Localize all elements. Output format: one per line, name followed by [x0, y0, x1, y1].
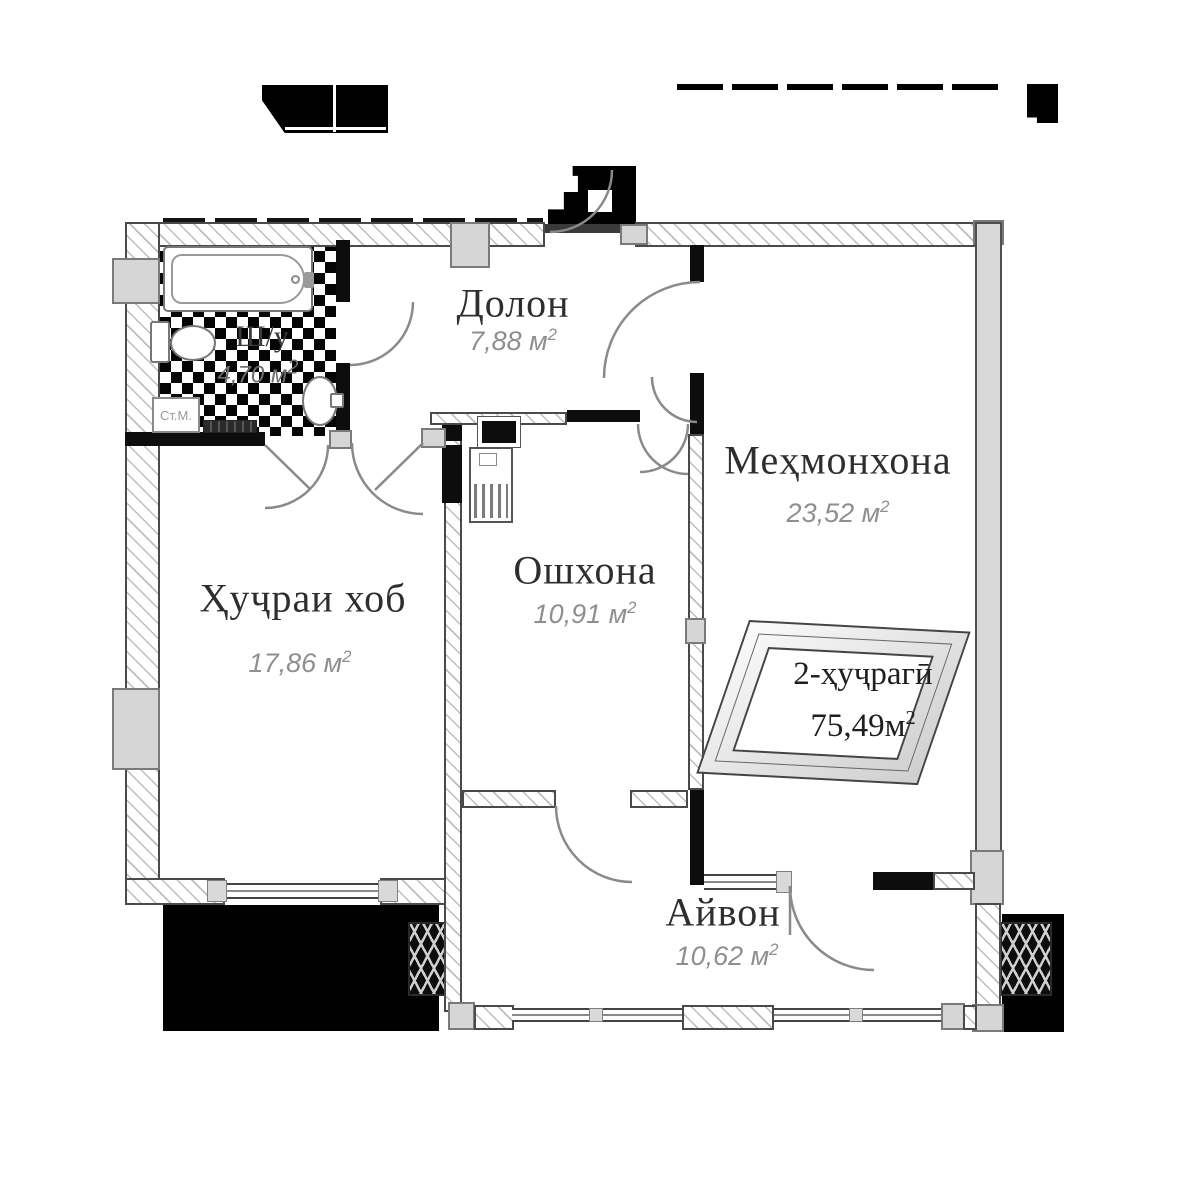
faucet-icon: [304, 272, 314, 288]
block-kitchen-living: [685, 618, 706, 644]
balcony-block-right: [941, 1003, 965, 1030]
balcony-center-pier: [682, 1005, 774, 1030]
block-bath-doors-mid: [329, 430, 352, 449]
right-wall-lower: [975, 903, 1001, 1007]
room-label-bathroom: Ш/у: [235, 320, 289, 354]
room-area-ayvon: 10,62 м2: [676, 940, 779, 972]
room-label-oshkhona: Ошхона: [513, 547, 656, 594]
hall-living-wall-upper: [690, 245, 704, 282]
room-area-bedroom: 17,86 м2: [249, 647, 352, 679]
total-area-badge-text: 2-ҳуҷрагӣ 75,49м2: [768, 652, 958, 748]
pier-left-upper: [112, 258, 160, 304]
bathtub-inner: [171, 254, 305, 304]
room-label-dolon: Долон: [456, 280, 569, 327]
room-label-mehmonkhona: Меҳмонхона: [724, 437, 951, 484]
neighbor-area-bottom-left: [163, 905, 439, 1031]
room-label-ayvon: Айвон: [665, 889, 780, 936]
floor-plan: Ст.М. 2-ҳуҷрагӣ 75,49м2 Долон 7,88 м2 Ме…: [0, 0, 1181, 1181]
pillar-top: [450, 222, 490, 268]
bedroom-window-jamb-right: [378, 880, 398, 902]
bedroom-window: [225, 883, 380, 899]
vent-shaft-2: [442, 445, 462, 503]
balcony-corner-left: [448, 1002, 475, 1030]
redaction-top-left-gap-v: [333, 85, 336, 132]
kitchen-living-wall-black: [690, 790, 704, 885]
living-bottom-wall-hatch: [933, 872, 975, 890]
stove-panel: [479, 453, 497, 466]
toilet-bowl: [170, 325, 216, 361]
kitchen-top-wall-black: [567, 410, 640, 422]
kitchen-bottom-wall-left: [462, 790, 556, 808]
balcony-bottom-wall-2: [963, 1005, 977, 1030]
room-area-bathroom: 4,70 м2: [218, 357, 299, 390]
bedroom-window-jamb-left: [207, 880, 227, 902]
right-wall: [975, 222, 1002, 852]
stove: [469, 447, 513, 523]
bathroom-right-wall-upper: [336, 240, 350, 302]
room-area-oshkhona: 10,91 м2: [534, 598, 637, 630]
redaction-top-left-gap-h: [285, 127, 386, 130]
bathtub-drain: [291, 275, 300, 284]
ac-grille-right: [1000, 922, 1052, 996]
block-right-mid: [970, 850, 1004, 905]
kitchen-living-wall: [688, 434, 704, 790]
sink-tap: [330, 393, 344, 408]
top-wall-right: [635, 222, 1000, 247]
hall-living-wall-mid: [690, 373, 704, 434]
bath-mat: [203, 420, 257, 433]
block-bath-doors-right: [421, 428, 446, 448]
badge-line2: 75,49м2: [768, 696, 958, 748]
bathtub: [163, 246, 313, 312]
balcony-window-b-mullion: [849, 1008, 863, 1022]
entrance-blob-notch: [588, 190, 612, 212]
living-bottom-wall-black: [873, 872, 935, 890]
washing-machine: Ст.М.: [152, 397, 200, 433]
bathroom-bottom-wall: [125, 432, 265, 446]
balcony-bottom-wall-1: [474, 1005, 514, 1030]
balcony-window-a-mullion: [589, 1008, 603, 1022]
dashed-line-end-block: [1027, 84, 1058, 123]
vent-shaft-3: [478, 417, 520, 447]
room-area-dolon: 7,88 м2: [469, 325, 557, 357]
badge-line1: 2-ҳуҷрагӣ: [768, 652, 958, 696]
pier-left-lower: [112, 688, 160, 770]
stove-grill: [474, 484, 508, 518]
dashed-upper-line: [677, 84, 1007, 90]
room-label-bedroom: Ҳуҷраи хоб: [200, 575, 407, 622]
redaction-top-left-blob: [262, 85, 388, 133]
kitchen-bottom-wall-right: [630, 790, 688, 808]
block-top-right-of-door: [620, 224, 648, 245]
room-area-mehmonkhona: 23,52 м2: [787, 497, 890, 529]
toilet-tank: [150, 321, 170, 363]
